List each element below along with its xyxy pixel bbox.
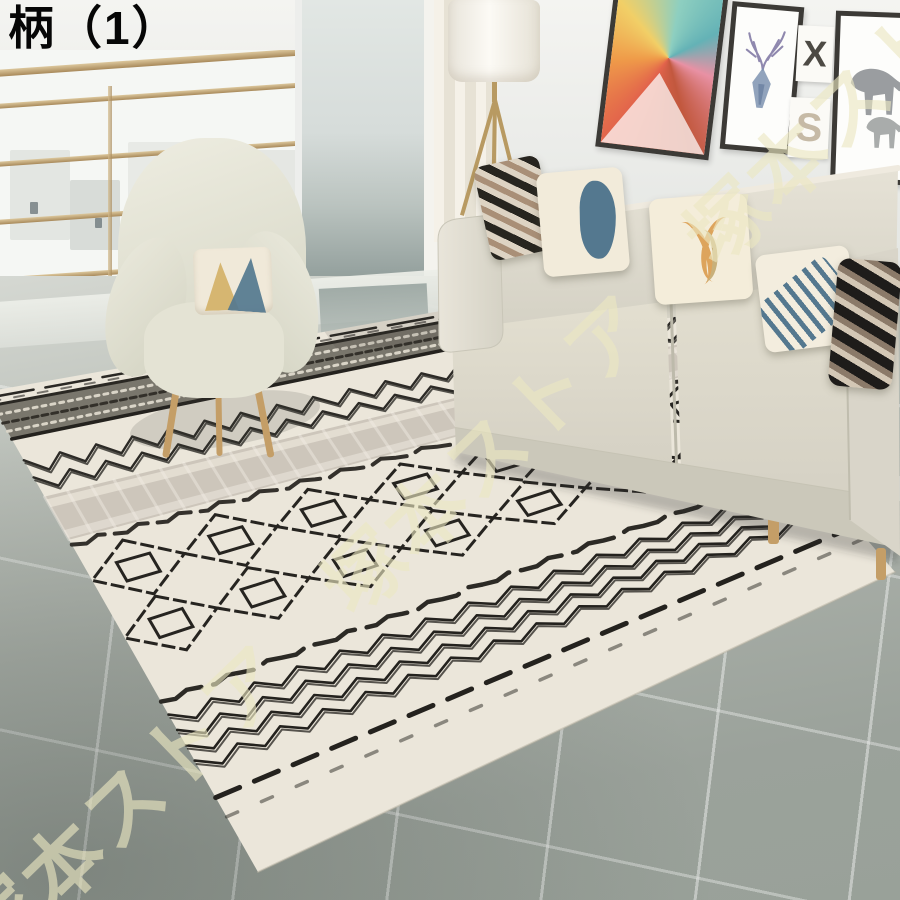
sofa-pillow-leaf bbox=[648, 193, 753, 306]
letter-s-text: S bbox=[795, 105, 824, 150]
sofa-pillow-striped-right bbox=[828, 257, 900, 390]
pattern-label: 柄（1） bbox=[8, 2, 180, 55]
lamp-shade bbox=[448, 0, 540, 82]
armchair bbox=[110, 130, 320, 462]
floor-reflection bbox=[319, 283, 429, 339]
letter-panel-x: X bbox=[796, 25, 835, 83]
letter-panel-s: S bbox=[787, 97, 830, 159]
pillow-blue-shape bbox=[579, 180, 616, 259]
living-room-photo: X S 塚本ストア 塚本ストア 塚本ストア 柄（1） bbox=[0, 0, 900, 900]
frame-deer-art bbox=[830, 11, 900, 186]
pillow-triangle-blue bbox=[224, 254, 270, 313]
frame-abstract-art bbox=[595, 0, 729, 160]
railing-bar bbox=[0, 80, 332, 109]
armchair-pillow bbox=[193, 247, 273, 316]
deer-art-drawing bbox=[835, 16, 900, 180]
antler-art-drawing bbox=[725, 7, 799, 150]
window-speck bbox=[95, 218, 102, 228]
armchair-leg bbox=[215, 392, 222, 456]
armchair-seat bbox=[144, 302, 284, 398]
letter-x-text: X bbox=[802, 32, 828, 74]
window-speck bbox=[30, 202, 38, 214]
sofa-pillow-cream-blue bbox=[536, 166, 631, 277]
